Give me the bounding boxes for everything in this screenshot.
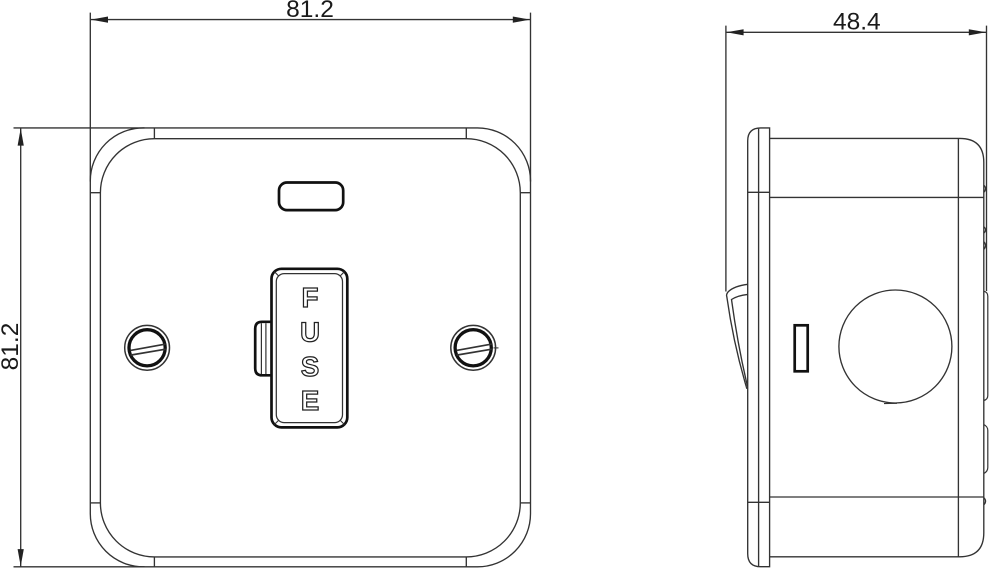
svg-text:81.2: 81.2 <box>286 0 334 23</box>
svg-text:E: E <box>301 385 319 416</box>
svg-text:F: F <box>302 282 319 313</box>
svg-text:48.4: 48.4 <box>833 8 881 35</box>
svg-text:U: U <box>300 316 320 347</box>
svg-text:81.2: 81.2 <box>0 323 24 371</box>
svg-text:S: S <box>301 351 319 382</box>
